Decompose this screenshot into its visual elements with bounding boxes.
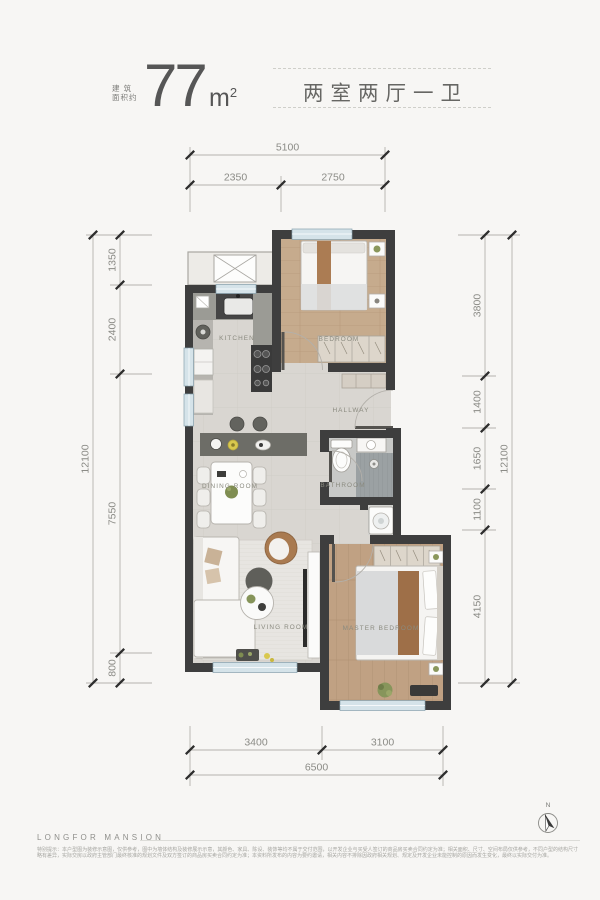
bed-blanket: [301, 284, 367, 310]
dim-left-total: 12100: [80, 444, 92, 473]
bowl: [240, 471, 247, 478]
window: [184, 394, 194, 426]
wall: [320, 430, 401, 438]
balcony: [188, 252, 278, 285]
tv-console: [308, 552, 320, 658]
window: [216, 285, 256, 294]
room-label-bathroom: BATHROOM: [320, 482, 365, 489]
master-door-leaf: [332, 544, 335, 582]
wall: [320, 497, 401, 505]
kettle: [211, 439, 222, 450]
window: [213, 663, 297, 673]
tv: [303, 569, 307, 647]
dim-top-total: 5100: [276, 142, 300, 154]
bedroom-door-leaf: [282, 332, 285, 370]
room-label-living: LIVING ROOM: [254, 624, 309, 631]
placemat: [217, 471, 226, 477]
window: [292, 229, 352, 240]
room-label-kitchen: KITCHEN: [219, 335, 255, 342]
dim-bottom-seg2: 3100: [371, 737, 395, 749]
compass-north-label: N: [546, 802, 551, 809]
coffee-table-plant: [247, 595, 256, 604]
room-label-bedroom: BEDROOM: [319, 336, 360, 343]
sofa-cushion: [205, 568, 221, 584]
coffee-table: [241, 587, 274, 620]
dim-right-seg5: 4150: [472, 595, 484, 619]
wall: [360, 505, 368, 510]
dim-bottom-total: 6500: [305, 762, 329, 774]
dim-left-seg1: 1350: [107, 248, 119, 272]
floor-plan-svg: KITCHEN BEDROOM HALLWAY DINING ROOM BATH…: [0, 0, 600, 900]
room-label-hallway: HALLWAY: [332, 407, 369, 414]
dim-right-seg4: 1100: [472, 498, 484, 521]
window: [340, 701, 425, 711]
plant-pot: [374, 246, 381, 253]
master-pillow: [423, 571, 439, 610]
bar-stool: [230, 417, 244, 431]
dim-right-seg1: 3800: [472, 294, 484, 318]
table-lamp: [375, 299, 380, 304]
wall: [370, 535, 451, 544]
wall: [320, 544, 329, 710]
wall: [272, 230, 281, 372]
dim-bottom-seg1: 3400: [244, 737, 268, 749]
bedroom-pillows: [303, 243, 365, 253]
wall: [443, 535, 451, 710]
wall: [320, 438, 329, 452]
room-label-master: MASTER BEDROOM: [343, 625, 420, 632]
wall: [320, 535, 334, 544]
dim-top-seg2: 2750: [321, 172, 345, 184]
wall: [393, 438, 401, 505]
bed-bench: [410, 685, 438, 696]
flowers: [264, 653, 270, 659]
dim-right-seg2: 1400: [472, 390, 484, 414]
dim-left-seg2: 2400: [107, 318, 119, 342]
shoe-cabinet: [342, 374, 386, 388]
dim-top-seg1: 2350: [224, 172, 248, 184]
room-label-dining: DINING ROOM: [202, 483, 258, 490]
bathroom-door-leaf: [329, 451, 332, 482]
dim-left-seg3: 7550: [107, 502, 119, 526]
disclaimer-text: 特别提示：本户型图为装修示意图，仅供参考，图中为墙体结构及装修展示示意，其颜色、…: [37, 847, 578, 860]
master-pillow: [423, 617, 439, 656]
dim-right-seg3: 1650: [472, 447, 484, 471]
wall: [328, 363, 395, 372]
compass-icon: N: [535, 799, 561, 839]
wall: [393, 505, 401, 537]
kitchen-faucet: [236, 294, 240, 298]
sink-basin: [367, 441, 376, 450]
window: [184, 348, 194, 386]
kitchen-cabinet: [194, 380, 213, 413]
kitchen-sink-basin: [224, 298, 253, 315]
dim-right-total: 12100: [499, 444, 511, 473]
master-headboard: [437, 566, 443, 660]
dim-left-seg4: 800: [107, 659, 119, 677]
master-bed-runner: [398, 571, 419, 655]
footer-divider: [140, 840, 580, 841]
toilet-tank: [331, 440, 352, 448]
wall: [185, 285, 193, 672]
bar-stool: [253, 417, 267, 431]
floorplan-page: 建 筑 面积约 77 m2 两室两厅一卫: [0, 0, 600, 900]
